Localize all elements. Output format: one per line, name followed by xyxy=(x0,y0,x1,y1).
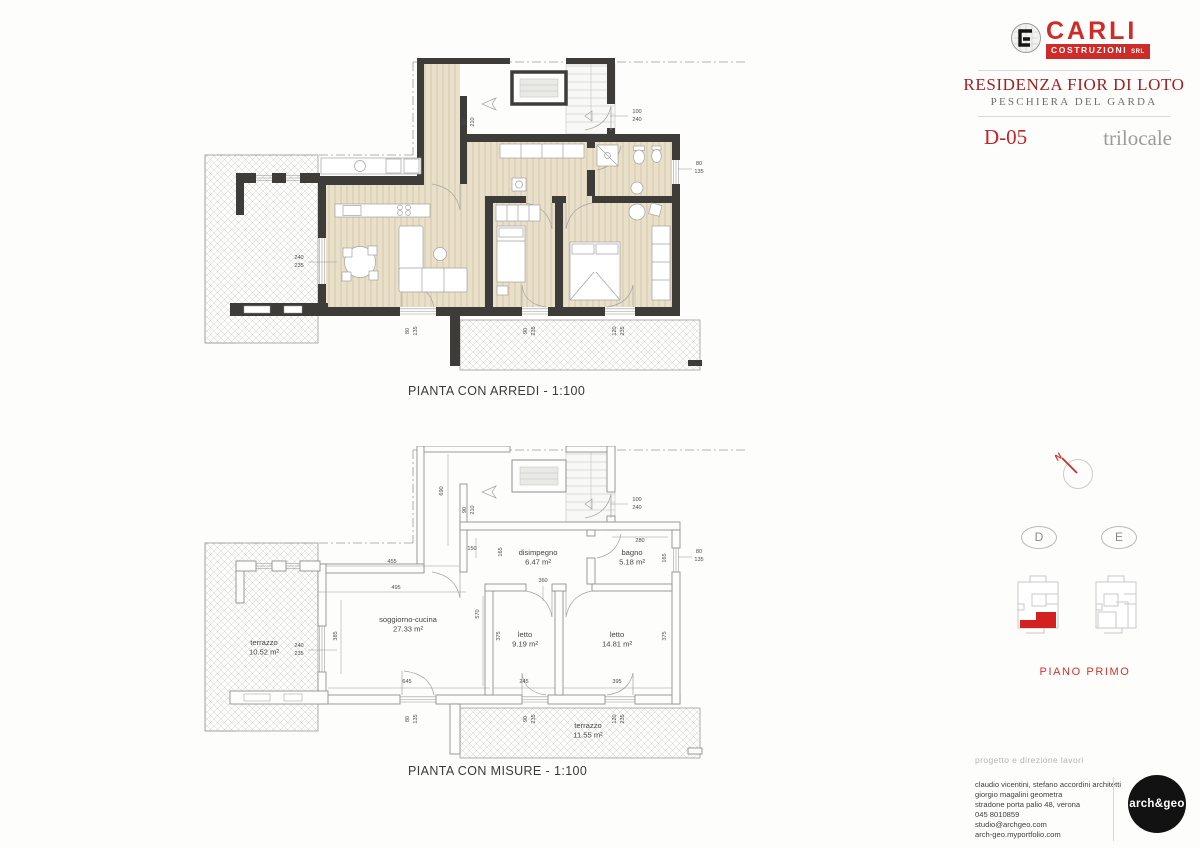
credits-block: claudio vicentini, stefano accordini arc… xyxy=(975,780,1121,840)
room-label: letto xyxy=(518,630,532,639)
dimension-label: 210 xyxy=(470,117,476,126)
block-label-e: E xyxy=(1101,526,1137,549)
north-letter: N xyxy=(1052,451,1064,463)
dimension-label: 135 xyxy=(694,557,703,563)
dimension-label: 120 xyxy=(612,326,618,335)
dimension-label: 240 xyxy=(632,505,641,511)
credit-line: studio@archgeo.com xyxy=(975,820,1121,830)
dimension-label: 165 xyxy=(662,553,668,562)
key-plan-diagram xyxy=(1000,568,1170,648)
floor-plan-measured: terrazzo10.52 m²soggiorno-cucina27.33 m²… xyxy=(200,446,760,778)
dimension-label: 385 xyxy=(333,631,339,640)
logo-subtitle: COSTRUZIONI SRL xyxy=(1046,44,1150,59)
dimension-label: 210 xyxy=(470,505,476,514)
dimension-label: 495 xyxy=(391,585,400,591)
dimension-label: 80 xyxy=(696,161,702,167)
dimension-label: 135 xyxy=(413,326,419,335)
dimension-label: 150 xyxy=(467,546,476,552)
dimension-label: 240 xyxy=(294,643,303,649)
dimension-label: 80 xyxy=(405,716,411,722)
floor-label: PIANO PRIMO xyxy=(1000,666,1170,678)
logo-srl: SRL xyxy=(1131,49,1145,55)
dimension-label: 570 xyxy=(475,609,481,618)
dimension-label: 245 xyxy=(519,679,528,685)
dimension-label: 100 xyxy=(632,109,641,115)
dimension-label: 235 xyxy=(620,714,626,723)
dimension-label: 165 xyxy=(498,547,504,556)
room-area-label: 5.18 m² xyxy=(619,558,645,567)
credit-line: stradone porta palio 48, verona xyxy=(975,800,1121,810)
unit-type: trilocale xyxy=(1103,126,1172,151)
room-area-label: 14.81 m² xyxy=(602,640,632,649)
dimension-label: 80 xyxy=(696,549,702,555)
logo-costruzioni: COSTRUZIONI xyxy=(1051,45,1127,55)
dimension-label: 240 xyxy=(294,255,303,261)
room-label: bagno xyxy=(621,548,642,557)
dimension-label: 100 xyxy=(632,497,641,503)
room-label: terrazzo xyxy=(250,638,277,647)
room-area-label: 6.47 m² xyxy=(525,558,551,567)
unit-code: D-05 xyxy=(984,125,1027,150)
dimension-label: 360 xyxy=(538,578,547,584)
floor-plan-furnished: 24023590210100240801358013590235120235 xyxy=(200,58,760,390)
dimension-labels-measured: 24023590210100240801358013590235120235 xyxy=(294,497,703,724)
room-area-label: 27.33 m² xyxy=(393,625,423,634)
drawing-sheet: 24023590210100240801358013590235120235 xyxy=(0,0,1200,848)
north-arrow-icon: N xyxy=(1048,446,1108,494)
dimension-label: 240 xyxy=(632,117,641,123)
room-label: letto xyxy=(610,630,624,639)
dimension-label: 235 xyxy=(531,326,537,335)
credit-line: giorgio magalini geometra xyxy=(975,790,1121,800)
dimension-label: 235 xyxy=(620,326,626,335)
credit-line: arch-geo.myportfolio.com xyxy=(975,830,1121,840)
caption-pianta-arredi: PIANTA CON ARREDI - 1:100 xyxy=(408,384,585,398)
dimension-label: 235 xyxy=(531,714,537,723)
dimension-label: 645 xyxy=(402,679,411,685)
dimension-label: 235 xyxy=(294,651,303,657)
dimension-label: 375 xyxy=(662,631,668,640)
dimension-label: 455 xyxy=(387,559,396,565)
room-area-label: 9.19 m² xyxy=(512,640,538,649)
carli-logo-icon xyxy=(1010,22,1042,54)
credits-heading: progetto e direzione lavori xyxy=(975,755,1084,765)
caption-pianta-misure: PIANTA CON MISURE - 1:100 xyxy=(408,764,587,778)
company-logo: CARLI COSTRUZIONI SRL xyxy=(1010,18,1170,59)
room-area-label: 10.52 m² xyxy=(249,648,279,657)
divider-line xyxy=(978,116,1170,117)
block-label-d: D xyxy=(1021,526,1057,549)
dimension-label: 135 xyxy=(413,714,419,723)
dimension-label: 235 xyxy=(294,263,303,269)
dimension-label: 135 xyxy=(694,169,703,175)
residence-title: RESIDENZA FIOR DI LOTO xyxy=(960,75,1188,95)
credit-line: 045 8010859 xyxy=(975,810,1121,820)
dimension-label: 90 xyxy=(523,716,529,722)
dimension-label: 280 xyxy=(635,538,644,544)
divider-vertical xyxy=(1113,777,1114,841)
room-label: terrazzo xyxy=(574,721,601,730)
dimension-label: 90 xyxy=(462,507,468,513)
room-label: soggiorno-cucina xyxy=(379,615,438,624)
credit-line: claudio vicentini, stefano accordini arc… xyxy=(975,780,1121,790)
room-area-label: 11.55 m² xyxy=(573,731,603,740)
logo-name: CARLI xyxy=(1046,18,1137,44)
dimension-label: 395 xyxy=(612,679,621,685)
key-plan-block-e xyxy=(1096,576,1136,633)
dimension-label: 375 xyxy=(496,631,502,640)
dimension-label: 120 xyxy=(612,714,618,723)
divider-line xyxy=(978,70,1170,71)
dimension-label: 90 xyxy=(523,328,529,334)
residence-location: PESCHIERA DEL GARDA xyxy=(960,96,1188,108)
dimension-label: 90 xyxy=(462,119,468,125)
dimension-label: 80 xyxy=(405,328,411,334)
key-plan-block-d xyxy=(1018,576,1058,633)
room-label: disimpegno xyxy=(519,548,558,557)
archgeo-logo: arch&geo xyxy=(1128,775,1186,833)
dimension-label: 690 xyxy=(439,486,445,495)
